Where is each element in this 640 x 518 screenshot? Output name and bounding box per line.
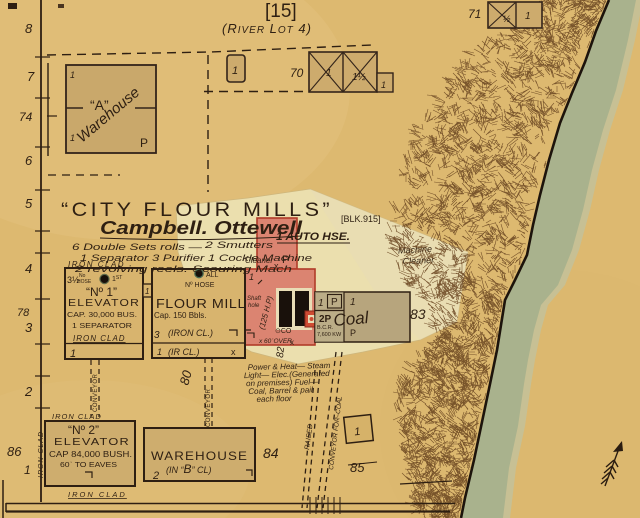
svg-text:CONVEYOR: CONVEYOR xyxy=(93,373,99,412)
svg-text:1: 1 xyxy=(232,65,238,77)
svg-text:Cap. 150 Bbls.: Cap. 150 Bbls. xyxy=(154,311,206,320)
svg-text:Cleaner: Cleaner xyxy=(245,256,273,265)
svg-text:ELEVATOR: ELEVATOR xyxy=(68,298,140,309)
svg-text:82: 82 xyxy=(275,346,287,358)
svg-text:⊙CO: ⊙CO xyxy=(275,328,292,335)
svg-text:6 Double Sets rolls —: 6 Double Sets rolls — xyxy=(72,242,203,253)
svg-text:½: ½ xyxy=(503,14,511,24)
svg-text:7: 7 xyxy=(27,69,35,84)
svg-text:86: 86 xyxy=(7,444,22,459)
svg-text:4: 4 xyxy=(25,261,32,276)
svg-text:1: 1 xyxy=(350,297,356,308)
svg-text:3: 3 xyxy=(25,320,33,335)
svg-text:“Nº 1”: “Nº 1” xyxy=(86,285,117,299)
svg-text:2 Smutters: 2 Smutters xyxy=(204,240,274,251)
svg-text:1 SEPARATOR: 1 SEPARATOR xyxy=(72,321,133,330)
svg-text:7,600 KW: 7,600 KW xyxy=(317,332,342,338)
svg-text:2 revolving reels. Scouring Ma: 2 revolving reels. Scouring Mach xyxy=(73,264,292,275)
svg-text:[BLK.915]: [BLK.915] xyxy=(341,214,381,224)
svg-text:70: 70 xyxy=(290,66,304,80)
svg-text:5: 5 xyxy=(25,196,33,211)
svg-text:85: 85 xyxy=(350,460,365,475)
svg-text:1: 1 xyxy=(326,68,332,79)
svg-text:P: P xyxy=(140,136,148,150)
svg-text:60ʾ TO EAVES: 60ʾ TO EAVES xyxy=(60,460,117,469)
svg-text:IRON CLAD: IRON CLAD xyxy=(68,490,127,499)
svg-text:1: 1 xyxy=(70,70,75,80)
svg-text:IRON CLAD: IRON CLAD xyxy=(73,334,126,343)
svg-text:IRON CLAD: IRON CLAD xyxy=(38,431,45,478)
svg-text:ELEVATOR: ELEVATOR xyxy=(54,437,130,448)
svg-text:(RIVER LOT 4): (RIVER LOT 4) xyxy=(222,21,312,36)
svg-text:FLOUR MILL: FLOUR MILL xyxy=(156,296,246,311)
svg-text:Shaft: Shaft xyxy=(247,296,261,302)
svg-text:1: 1 xyxy=(157,347,162,357)
svg-text:CONVEYOR: CONVEYOR xyxy=(206,388,212,427)
svg-text:2: 2 xyxy=(24,384,33,399)
svg-text:78: 78 xyxy=(17,307,30,319)
svg-text:1: 1 xyxy=(318,298,324,309)
svg-text:WAREHOUSE: WAREHOUSE xyxy=(151,449,248,463)
svg-text:1: 1 xyxy=(145,287,149,296)
svg-text:6: 6 xyxy=(25,153,33,168)
svg-text:2P: 2P xyxy=(319,314,332,325)
svg-text:P: P xyxy=(331,297,338,308)
svg-text:B.C.R.: B.C.R. xyxy=(317,325,334,331)
svg-text:1: 1 xyxy=(381,80,386,90)
svg-text:IRON CLAD: IRON CLAD xyxy=(52,412,102,421)
svg-text:x 60ʾOVER: x 60ʾOVER xyxy=(258,337,292,345)
svg-text:(IRON CL.): (IRON CL.) xyxy=(168,328,213,338)
svg-text:3: 3 xyxy=(154,330,160,341)
svg-text:8: 8 xyxy=(25,21,33,36)
svg-text:84: 84 xyxy=(263,445,279,461)
svg-text:hole: hole xyxy=(248,303,260,309)
svg-text:1½: 1½ xyxy=(352,72,367,83)
svg-text:(IR CL.): (IR CL.) xyxy=(168,347,200,357)
svg-text:CAP 84,000 BUSH.: CAP 84,000 BUSH. xyxy=(49,450,132,459)
svg-text:1: 1 xyxy=(354,426,361,439)
svg-text:x: x xyxy=(290,338,294,347)
svg-text:Nº HOSE: Nº HOSE xyxy=(185,282,215,289)
svg-text:74: 74 xyxy=(19,110,33,124)
svg-text:1: 1 xyxy=(70,348,76,360)
svg-text:83: 83 xyxy=(410,306,426,322)
svg-text:1: 1 xyxy=(24,463,31,477)
svg-text:1 Separator 3 Purifier 1 Coc: 1 Separator 3 Purifier 1 Cockle Machine xyxy=(80,253,312,264)
svg-text:1 AUTO HSE.: 1 AUTO HSE. xyxy=(276,231,350,243)
svg-text:x: x xyxy=(231,347,236,357)
svg-text:2: 2 xyxy=(152,470,159,482)
svg-text:1: 1 xyxy=(525,11,531,22)
svg-text:Coal: Coal xyxy=(333,308,371,330)
svg-text:[15]: [15] xyxy=(265,1,297,22)
svg-text:71: 71 xyxy=(468,7,481,21)
svg-text:(IN “B” CL): (IN “B” CL) xyxy=(166,462,212,476)
svg-text:Campbell. Ottewell: Campbell. Ottewell xyxy=(100,218,303,238)
svg-text:“Nº 2”: “Nº 2” xyxy=(68,423,99,437)
svg-text:P: P xyxy=(350,328,356,338)
svg-text:CAP. 30,000 BUS.: CAP. 30,000 BUS. xyxy=(67,310,137,319)
svg-text:each floor: each floor xyxy=(256,394,292,404)
